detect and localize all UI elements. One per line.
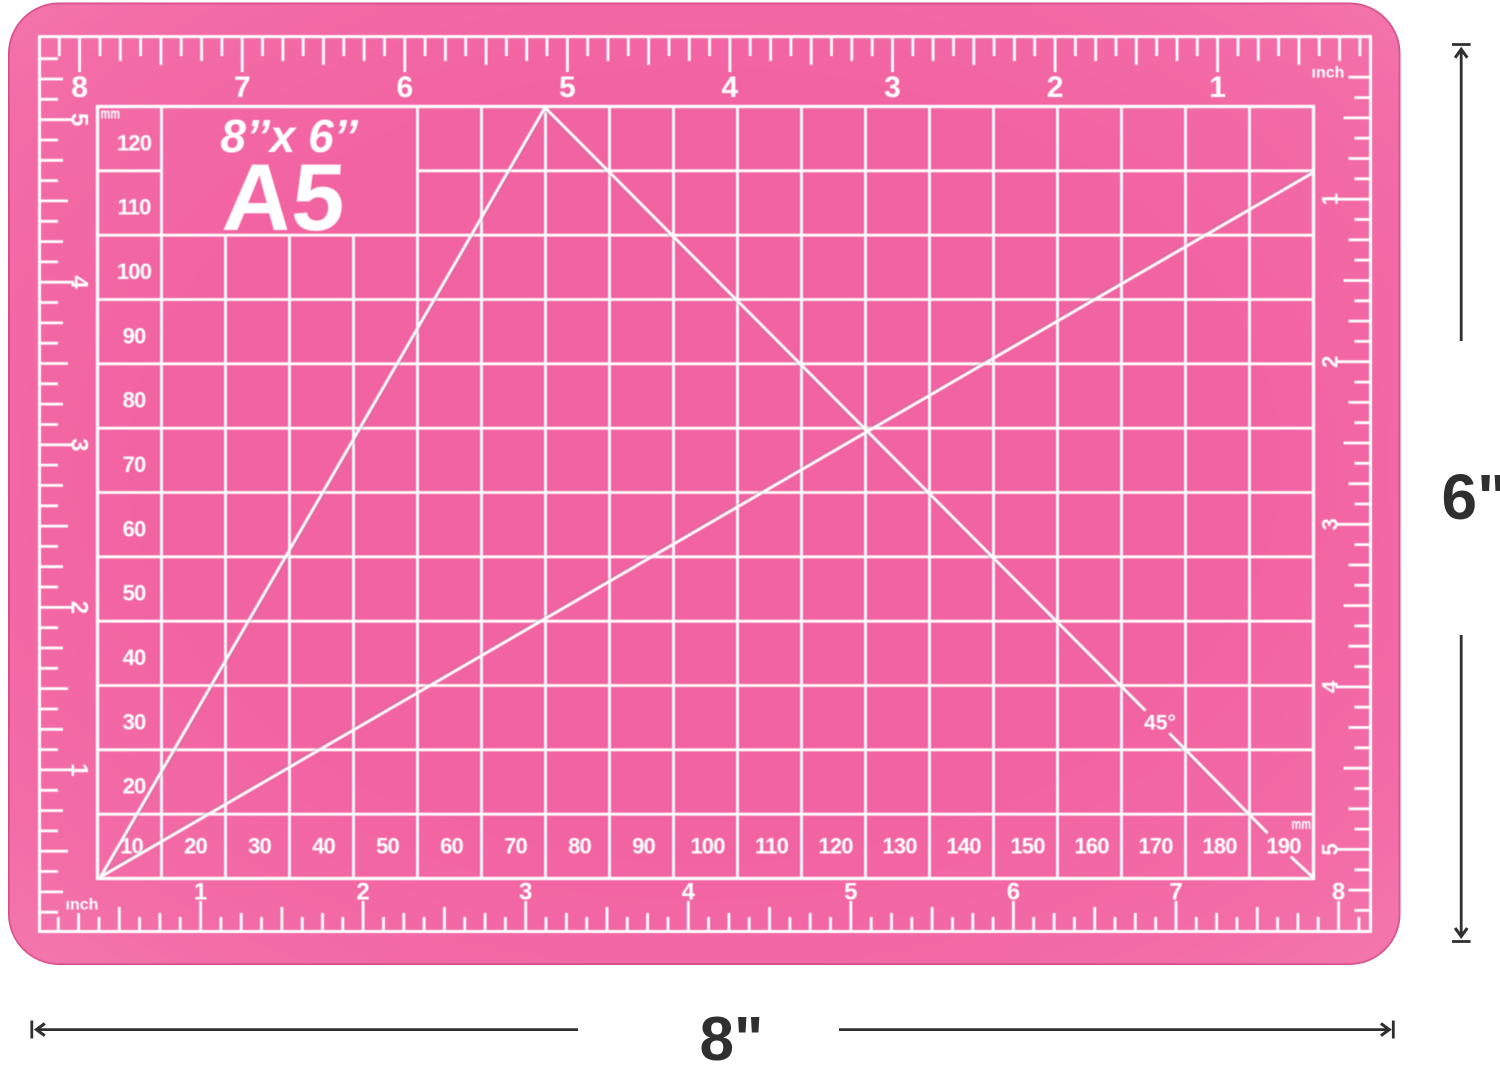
svg-text:150: 150 — [1010, 833, 1045, 858]
svg-text:90: 90 — [632, 833, 655, 858]
svg-text:2: 2 — [356, 879, 369, 906]
svg-text:7: 7 — [234, 71, 251, 104]
svg-text:160: 160 — [1074, 833, 1109, 858]
svg-text:mm: mm — [101, 105, 121, 122]
svg-text:7: 7 — [1169, 879, 1182, 906]
svg-text:ınch: ınch — [1312, 65, 1345, 82]
svg-text:1: 1 — [194, 879, 207, 906]
svg-text:5: 5 — [844, 879, 857, 906]
svg-text:8: 8 — [1332, 879, 1345, 906]
svg-text:6": 6" — [1442, 461, 1500, 533]
svg-text:5: 5 — [1317, 843, 1342, 855]
svg-text:140: 140 — [946, 833, 981, 858]
svg-text:190: 190 — [1266, 833, 1301, 858]
svg-text:50: 50 — [376, 833, 399, 858]
svg-text:2: 2 — [65, 601, 92, 614]
svg-text:100: 100 — [690, 833, 725, 858]
svg-text:6: 6 — [1007, 879, 1020, 906]
svg-text:130: 130 — [882, 833, 917, 858]
svg-text:30: 30 — [123, 709, 146, 734]
svg-text:20: 20 — [123, 774, 146, 799]
svg-text:120: 120 — [117, 130, 152, 155]
svg-text:80: 80 — [123, 388, 146, 413]
svg-text:8: 8 — [71, 71, 88, 104]
svg-text:110: 110 — [117, 195, 151, 220]
svg-text:5: 5 — [65, 113, 92, 126]
svg-text:4: 4 — [65, 276, 92, 290]
svg-text:110: 110 — [755, 833, 789, 858]
svg-text:1: 1 — [1317, 193, 1342, 205]
svg-text:90: 90 — [123, 323, 146, 348]
svg-text:4: 4 — [682, 879, 696, 906]
svg-text:180: 180 — [1202, 833, 1237, 858]
svg-text:4: 4 — [1317, 680, 1342, 693]
svg-text:8": 8" — [700, 1005, 764, 1065]
svg-text:60: 60 — [123, 516, 146, 541]
svg-text:3: 3 — [65, 438, 92, 451]
svg-text:6: 6 — [396, 71, 413, 104]
svg-text:4: 4 — [722, 71, 739, 104]
svg-text:3: 3 — [519, 879, 532, 906]
svg-text:100: 100 — [117, 259, 152, 284]
svg-text:20: 20 — [184, 833, 207, 858]
svg-text:60: 60 — [440, 833, 463, 858]
svg-text:1: 1 — [65, 763, 92, 776]
svg-text:2: 2 — [1317, 356, 1342, 368]
svg-text:80: 80 — [568, 833, 591, 858]
svg-text:45°: 45° — [1144, 712, 1176, 735]
svg-text:170: 170 — [1138, 833, 1173, 858]
svg-text:1: 1 — [1209, 71, 1226, 104]
svg-text:120: 120 — [818, 833, 853, 858]
svg-text:70: 70 — [504, 833, 527, 858]
svg-text:A5: A5 — [220, 145, 349, 251]
svg-text:30: 30 — [248, 833, 271, 858]
svg-text:2: 2 — [1047, 71, 1064, 104]
svg-text:50: 50 — [123, 581, 146, 606]
svg-text:3: 3 — [884, 71, 901, 104]
svg-text:3: 3 — [1317, 518, 1342, 530]
svg-text:40: 40 — [312, 833, 335, 858]
svg-text:5: 5 — [559, 71, 576, 104]
svg-text:40: 40 — [123, 645, 146, 670]
svg-text:mm: mm — [1291, 815, 1311, 832]
svg-text:ınch: ınch — [66, 897, 99, 914]
svg-text:70: 70 — [123, 452, 146, 477]
